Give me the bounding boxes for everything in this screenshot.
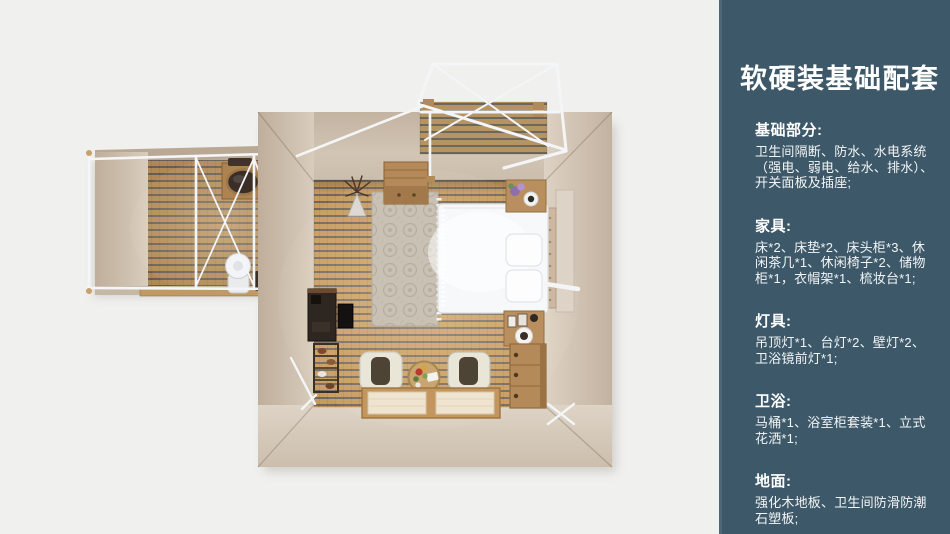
photo-frame-2 [518,314,527,326]
floor-mats [362,388,500,418]
section-furniture: 家具: 床*2、床垫*2、床头柜*3、休闲茶几*1、休闲椅子*2、储物柜*1，衣… [755,215,936,287]
toilet [226,254,251,294]
bed [428,204,556,313]
section-basics: 基础部分: 卫生间隔断、防水、水电系统（强电、弱电、给水、排水）、开关面板及插座… [755,119,936,191]
pergola-foot-right [533,103,544,117]
mirror-panel [556,190,574,312]
bedroom [258,112,612,467]
cushion [459,357,478,385]
wardrobe-box [384,162,428,204]
photo-frame-1 [508,316,516,327]
section-body: 强化木地板、卫生间防滑防潮石塑板; [755,495,936,526]
pillow-2 [506,270,542,302]
armchair-left [360,352,402,390]
faucet-left [228,158,252,166]
speaker-knob [530,314,538,322]
section-body: 床*2、床垫*2、床头柜*3、休闲茶几*1、休闲椅子*2、储物柜*1，衣帽架*1… [755,240,936,287]
section-heading: 卫浴: [755,390,936,411]
section-body: 吊顶灯*1、台灯*2、壁灯*2、卫浴镜前灯*1; [755,335,936,366]
tv-panel [338,304,353,328]
cushion [371,357,390,385]
section-flooring: 地面: 强化木地板、卫生间防滑防潮石塑板; [755,470,936,526]
pillow-1 [506,234,542,266]
section-body: 卫生间隔断、防水、水电系统（强电、弱电、给水、排水）、开关面板及插座; [755,144,936,191]
section-heading: 基础部分: [755,119,936,140]
section-heading: 家具: [755,215,936,236]
desk [308,289,336,341]
armchair-right [448,352,490,390]
section-heading: 灯具: [755,310,936,331]
nightstand-top [506,180,546,212]
section-body: 马桶*1、浴室柜套装*1、立式花洒*1; [755,415,936,446]
nightstand-bottom [504,311,544,346]
section-lighting: 灯具: 吊顶灯*1、台灯*2、壁灯*2、卫浴镜前灯*1; [755,310,936,366]
drawer-chest [510,344,546,408]
floorplan-render [0,0,718,534]
slide-canvas: 软硬装基础配套 基础部分: 卫生间隔断、防水、水电系统（强电、弱电、给水、排水）… [0,0,950,534]
section-bathroom: 卫浴: 马桶*1、浴室柜套装*1、立式花洒*1; [755,390,936,446]
info-sidebar: 软硬装基础配套 基础部分: 卫生间隔断、防水、水电系统（强电、弱电、给水、排水）… [719,0,950,534]
section-heading: 地面: [755,470,936,491]
sidebar-title: 软硬装基础配套 [740,64,936,95]
